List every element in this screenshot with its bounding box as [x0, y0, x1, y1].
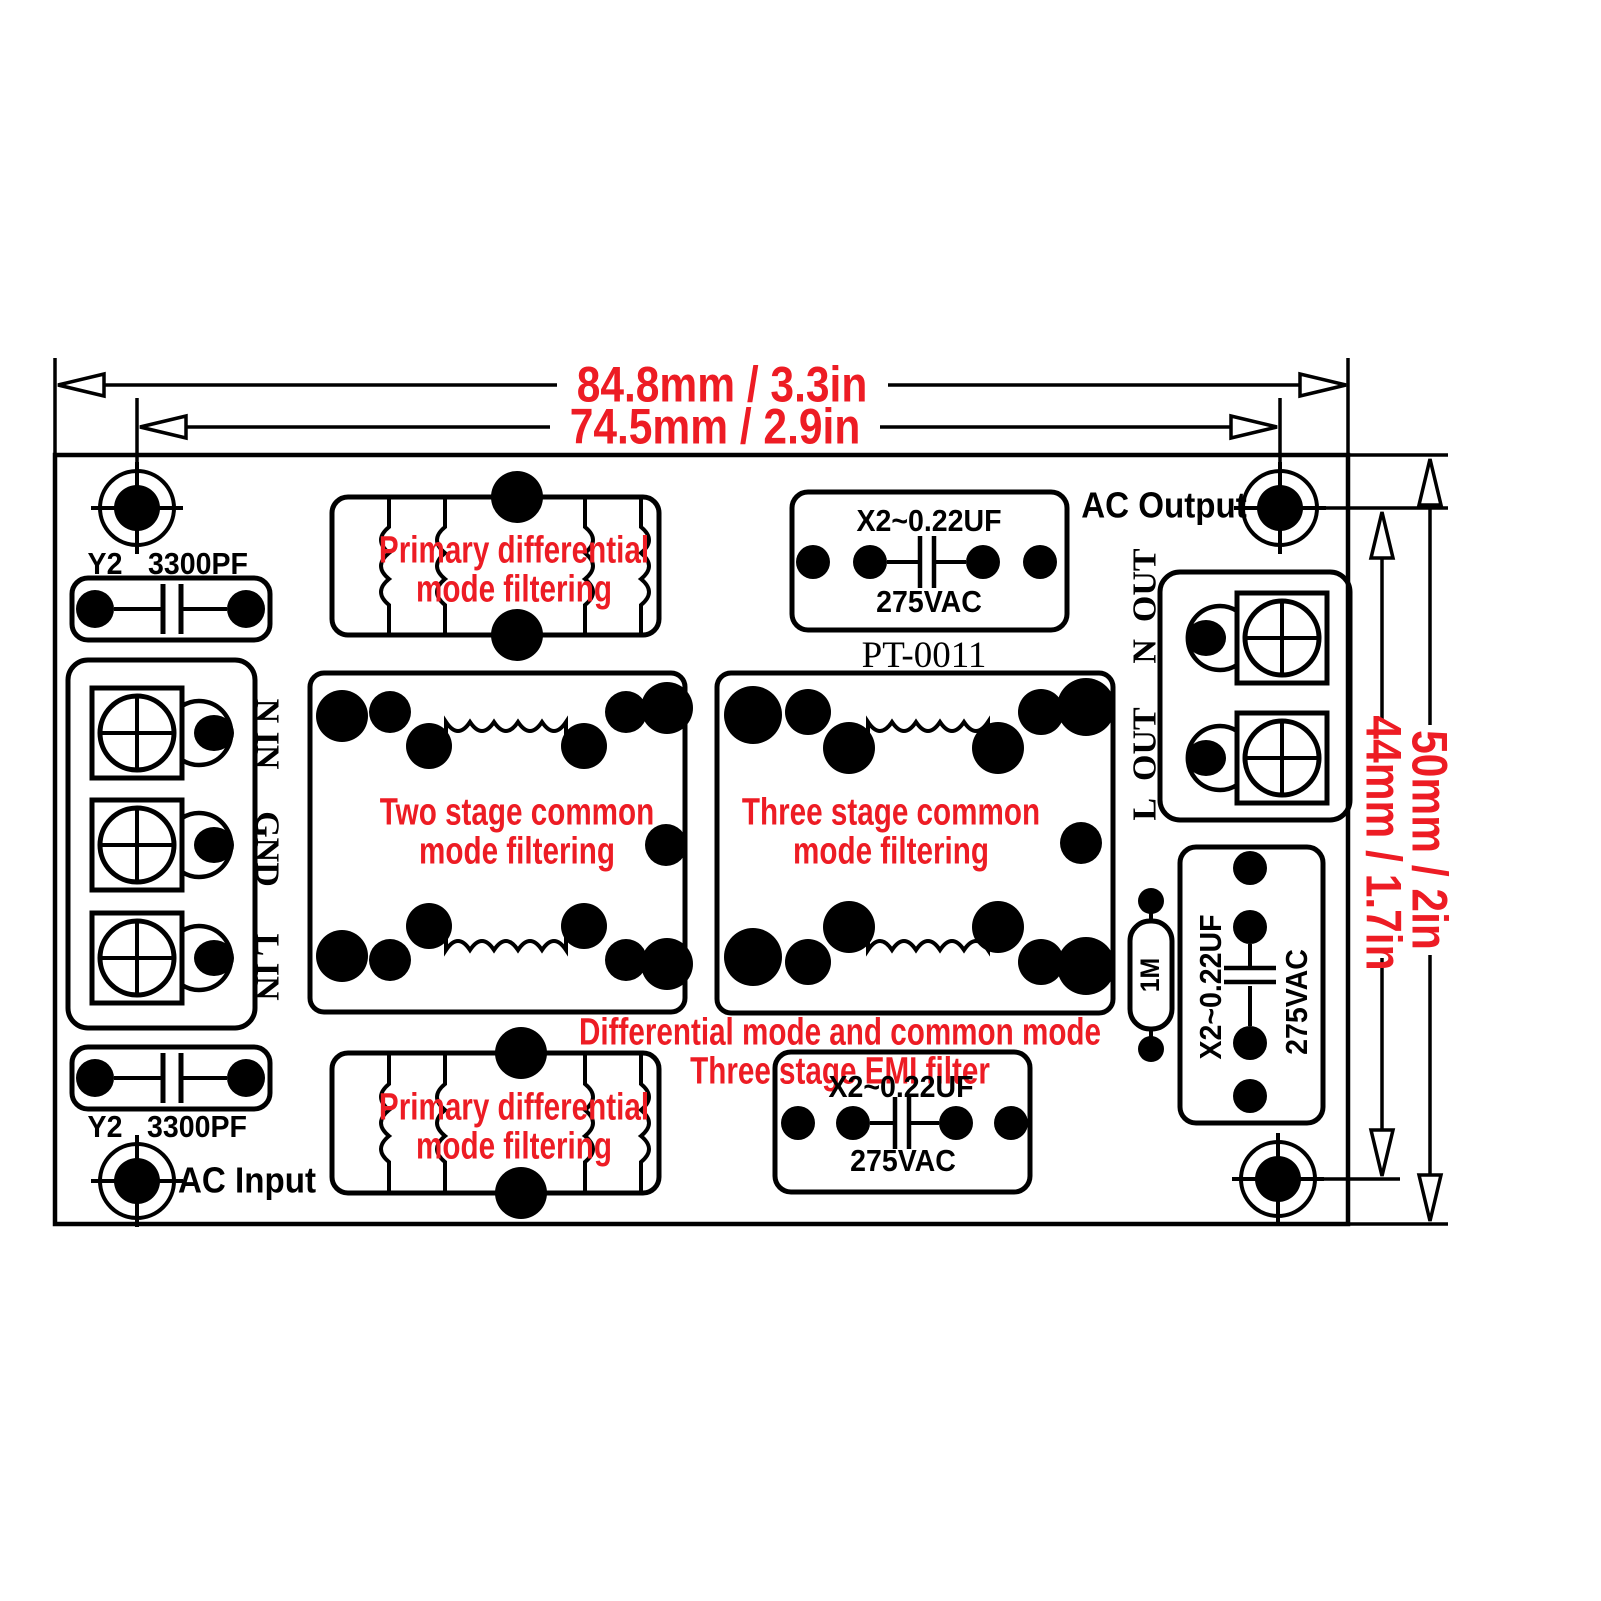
y2-bottom-value-label: 3300PF — [147, 1111, 247, 1143]
x2-top-rating-label: 275VAC — [876, 586, 982, 618]
port-label-n-in: N IN — [249, 699, 284, 770]
annotation-primary-diff-bottom: Primary differential mode filtering — [379, 1088, 649, 1166]
port-label-n-out: N_OUT — [1129, 548, 1164, 663]
output-terminal-block — [1160, 572, 1350, 820]
x2-bottom-value-label: X2~0.22UF — [828, 1071, 973, 1103]
board-model-label: PT-0011 — [862, 637, 987, 675]
port-label-gnd: GND — [249, 811, 284, 887]
x2-top-value-label: X2~0.22UF — [856, 505, 1001, 537]
y2-top-series-label: Y2 — [88, 548, 123, 580]
mounting-hole-top-left — [91, 462, 183, 554]
annotation-two-stage: Two stage common mode filtering — [380, 793, 654, 871]
dim-width-inner: 74.5mm / 2.9in — [570, 402, 861, 453]
annotation-primary-diff-top: Primary differential mode filtering — [379, 531, 649, 609]
y2-capacitor-bottom — [72, 1047, 270, 1109]
resistor-value-label: 1M — [1137, 958, 1165, 993]
input-terminal-block — [68, 660, 255, 1028]
x2-right-rating-label: 275VAC — [1281, 949, 1313, 1055]
y2-top-value-label: 3300PF — [148, 548, 248, 580]
ac-output-label: AC Output — [1081, 488, 1247, 525]
port-label-l-out: L_OUT — [1129, 707, 1164, 820]
ac-input-label: AC Input — [178, 1163, 316, 1200]
x2-right-value-label: X2~0.22UF — [1195, 914, 1227, 1059]
mounting-hole-top-right — [1234, 462, 1326, 554]
y2-capacitor-top — [72, 578, 270, 640]
x2-bottom-rating-label: 275VAC — [850, 1145, 956, 1177]
mounting-hole-bottom-right — [1232, 1133, 1324, 1225]
mounting-hole-bottom-left — [91, 1135, 183, 1227]
annotation-three-stage: Three stage common mode filtering — [742, 793, 1040, 871]
pcb-dimension-diagram: 84.8mm / 3.3in 74.5mm / 2.9in 50mm / 2in… — [0, 0, 1601, 1601]
y2-bottom-series-label: Y2 — [88, 1111, 123, 1143]
dim-height-inner: 44mm / 1.7in — [1358, 715, 1409, 970]
port-label-l-in: L IN — [249, 933, 284, 1000]
